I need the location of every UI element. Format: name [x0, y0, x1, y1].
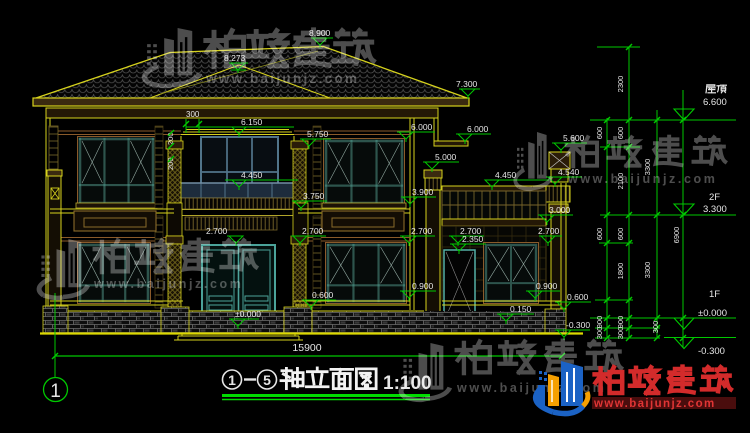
svg-text:5.750: 5.750: [307, 129, 329, 139]
svg-text:600: 600: [595, 127, 604, 140]
svg-text:300: 300: [186, 110, 200, 119]
svg-text:3.300: 3.300: [703, 204, 727, 215]
svg-text:www.baijunjz.com: www.baijunjz.com: [93, 277, 243, 291]
svg-text:6.000: 6.000: [467, 124, 489, 134]
svg-text:1: 1: [228, 372, 236, 388]
svg-text:600: 600: [595, 228, 604, 241]
svg-text:5.000: 5.000: [435, 152, 457, 162]
svg-text:600: 600: [616, 228, 625, 241]
svg-text:0.150: 0.150: [510, 304, 532, 314]
svg-text:600: 600: [616, 127, 625, 140]
svg-text:2.700: 2.700: [206, 226, 228, 236]
svg-text:3.900: 3.900: [412, 187, 434, 197]
svg-text:1F: 1F: [709, 289, 720, 300]
svg-text:300: 300: [616, 327, 625, 340]
svg-text:2.700: 2.700: [302, 226, 324, 236]
svg-text:2.350: 2.350: [462, 234, 484, 244]
svg-text:0.600: 0.600: [312, 290, 334, 300]
svg-text:www.baijunjz.com: www.baijunjz.com: [567, 172, 717, 186]
svg-text:±0.000: ±0.000: [235, 309, 261, 319]
svg-text:1800: 1800: [616, 263, 625, 280]
svg-text:2300: 2300: [616, 76, 625, 93]
svg-text:300: 300: [595, 327, 604, 340]
svg-text:7.300: 7.300: [456, 79, 478, 89]
svg-text:4.450: 4.450: [495, 170, 517, 180]
svg-text:www.baijunjz.com: www.baijunjz.com: [593, 398, 716, 410]
svg-text:2.700: 2.700: [538, 226, 560, 236]
svg-text:6.000: 6.000: [411, 122, 433, 132]
svg-text:2.700: 2.700: [411, 226, 433, 236]
svg-text:www.baijunjz.com: www.baijunjz.com: [456, 381, 606, 395]
svg-text:2F: 2F: [709, 192, 720, 203]
svg-text:900: 900: [616, 316, 625, 329]
svg-text:-0.300: -0.300: [566, 320, 590, 330]
svg-text:3.000: 3.000: [549, 205, 571, 215]
svg-text:0.600: 0.600: [567, 292, 589, 302]
svg-text:6900: 6900: [672, 227, 681, 244]
svg-text:6.600: 6.600: [703, 97, 727, 108]
svg-text:5: 5: [263, 372, 271, 388]
svg-text:-0.300: -0.300: [698, 346, 725, 357]
svg-text:0.900: 0.900: [536, 281, 558, 291]
svg-text:0.900: 0.900: [412, 281, 434, 291]
svg-text:6.150: 6.150: [241, 117, 263, 127]
svg-text:4.450: 4.450: [241, 170, 263, 180]
svg-text:1: 1: [50, 381, 61, 402]
svg-text:www.baijunjz.com: www.baijunjz.com: [205, 71, 359, 86]
svg-text:3300: 3300: [643, 262, 652, 279]
svg-text:900: 900: [595, 316, 604, 329]
svg-text:300: 300: [651, 321, 660, 334]
svg-text:3.750: 3.750: [303, 191, 325, 201]
svg-text:±0.000: ±0.000: [698, 308, 727, 319]
svg-text:15900: 15900: [292, 342, 321, 354]
